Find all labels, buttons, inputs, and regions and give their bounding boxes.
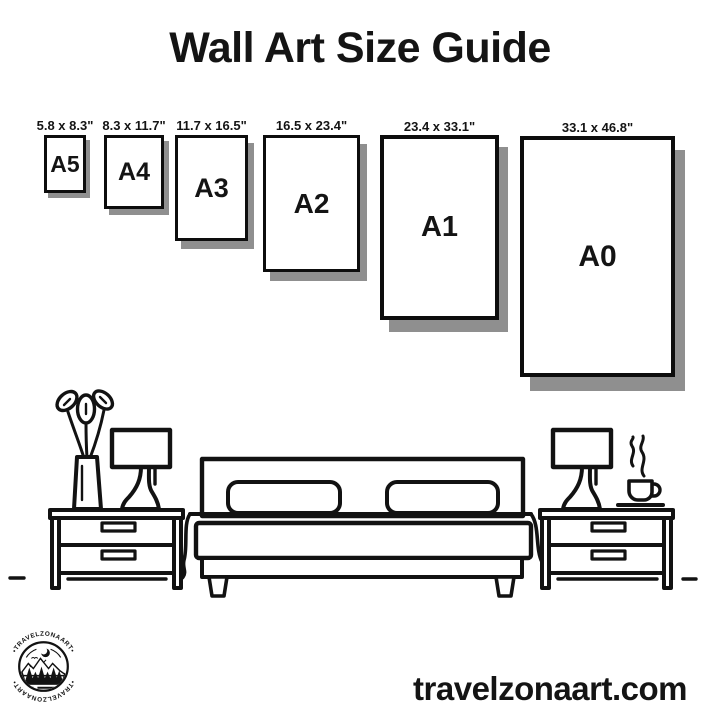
frame-a1-label: A1 — [421, 213, 458, 242]
size-frame-a1: 23.4 x 33.1" A1 — [380, 135, 499, 320]
website-url: travelzonaart.com — [380, 670, 720, 708]
page-title: Wall Art Size Guide — [0, 24, 720, 73]
frame-a5-dimensions: 5.8 x 8.3" — [37, 118, 94, 133]
lamp-left — [112, 430, 170, 509]
bedroom-illustration — [0, 380, 720, 605]
frame-a1-dimensions: 23.4 x 33.1" — [404, 119, 475, 134]
size-frame-a0: 33.1 x 46.8" A0 — [520, 136, 675, 377]
size-frame-a2: 16.5 x 23.4" A2 — [263, 135, 360, 272]
size-frame-a4: 8.3 x 11.7" A4 — [104, 135, 164, 209]
wall-art-size-guide-poster: Wall Art Size Guide 5.8 x 8.3" A5 8.3 x … — [0, 0, 720, 720]
bed — [177, 459, 543, 596]
size-frame-a5: 5.8 x 8.3" A5 — [44, 135, 86, 193]
steam-icon — [641, 436, 644, 476]
frame-a3-dimensions: 11.7 x 16.5" — [176, 118, 247, 133]
brand-logo: •TRAVELZONAART• •TRAVELZONAART• — [3, 626, 84, 707]
bed-foot-right — [496, 577, 514, 596]
steam-icon — [631, 437, 634, 466]
size-frame-a3: 11.7 x 16.5" A3 — [175, 135, 248, 241]
bed-foot-left — [209, 577, 227, 596]
coffee-cup — [618, 436, 663, 505]
lamp-right — [553, 430, 611, 509]
frame-a2-dimensions: 16.5 x 23.4" — [276, 118, 347, 133]
frame-a5-label: A5 — [50, 153, 79, 176]
bed-base — [202, 558, 522, 577]
frame-a4-label: A4 — [118, 160, 150, 185]
frame-a2-label: A2 — [294, 190, 330, 218]
nightstand-right — [540, 510, 673, 588]
frame-a4-dimensions: 8.3 x 11.7" — [102, 118, 165, 133]
frame-a0-label: A0 — [578, 242, 616, 272]
nightstand-left — [50, 510, 183, 588]
plant-vase — [53, 387, 115, 509]
bed-mattress — [196, 523, 531, 558]
vase — [74, 457, 101, 509]
frame-a0-dimensions: 33.1 x 46.8" — [562, 120, 633, 135]
bed-pillow-right — [387, 482, 498, 513]
bed-pillow-left — [228, 482, 340, 513]
frame-a3-label: A3 — [194, 175, 229, 202]
